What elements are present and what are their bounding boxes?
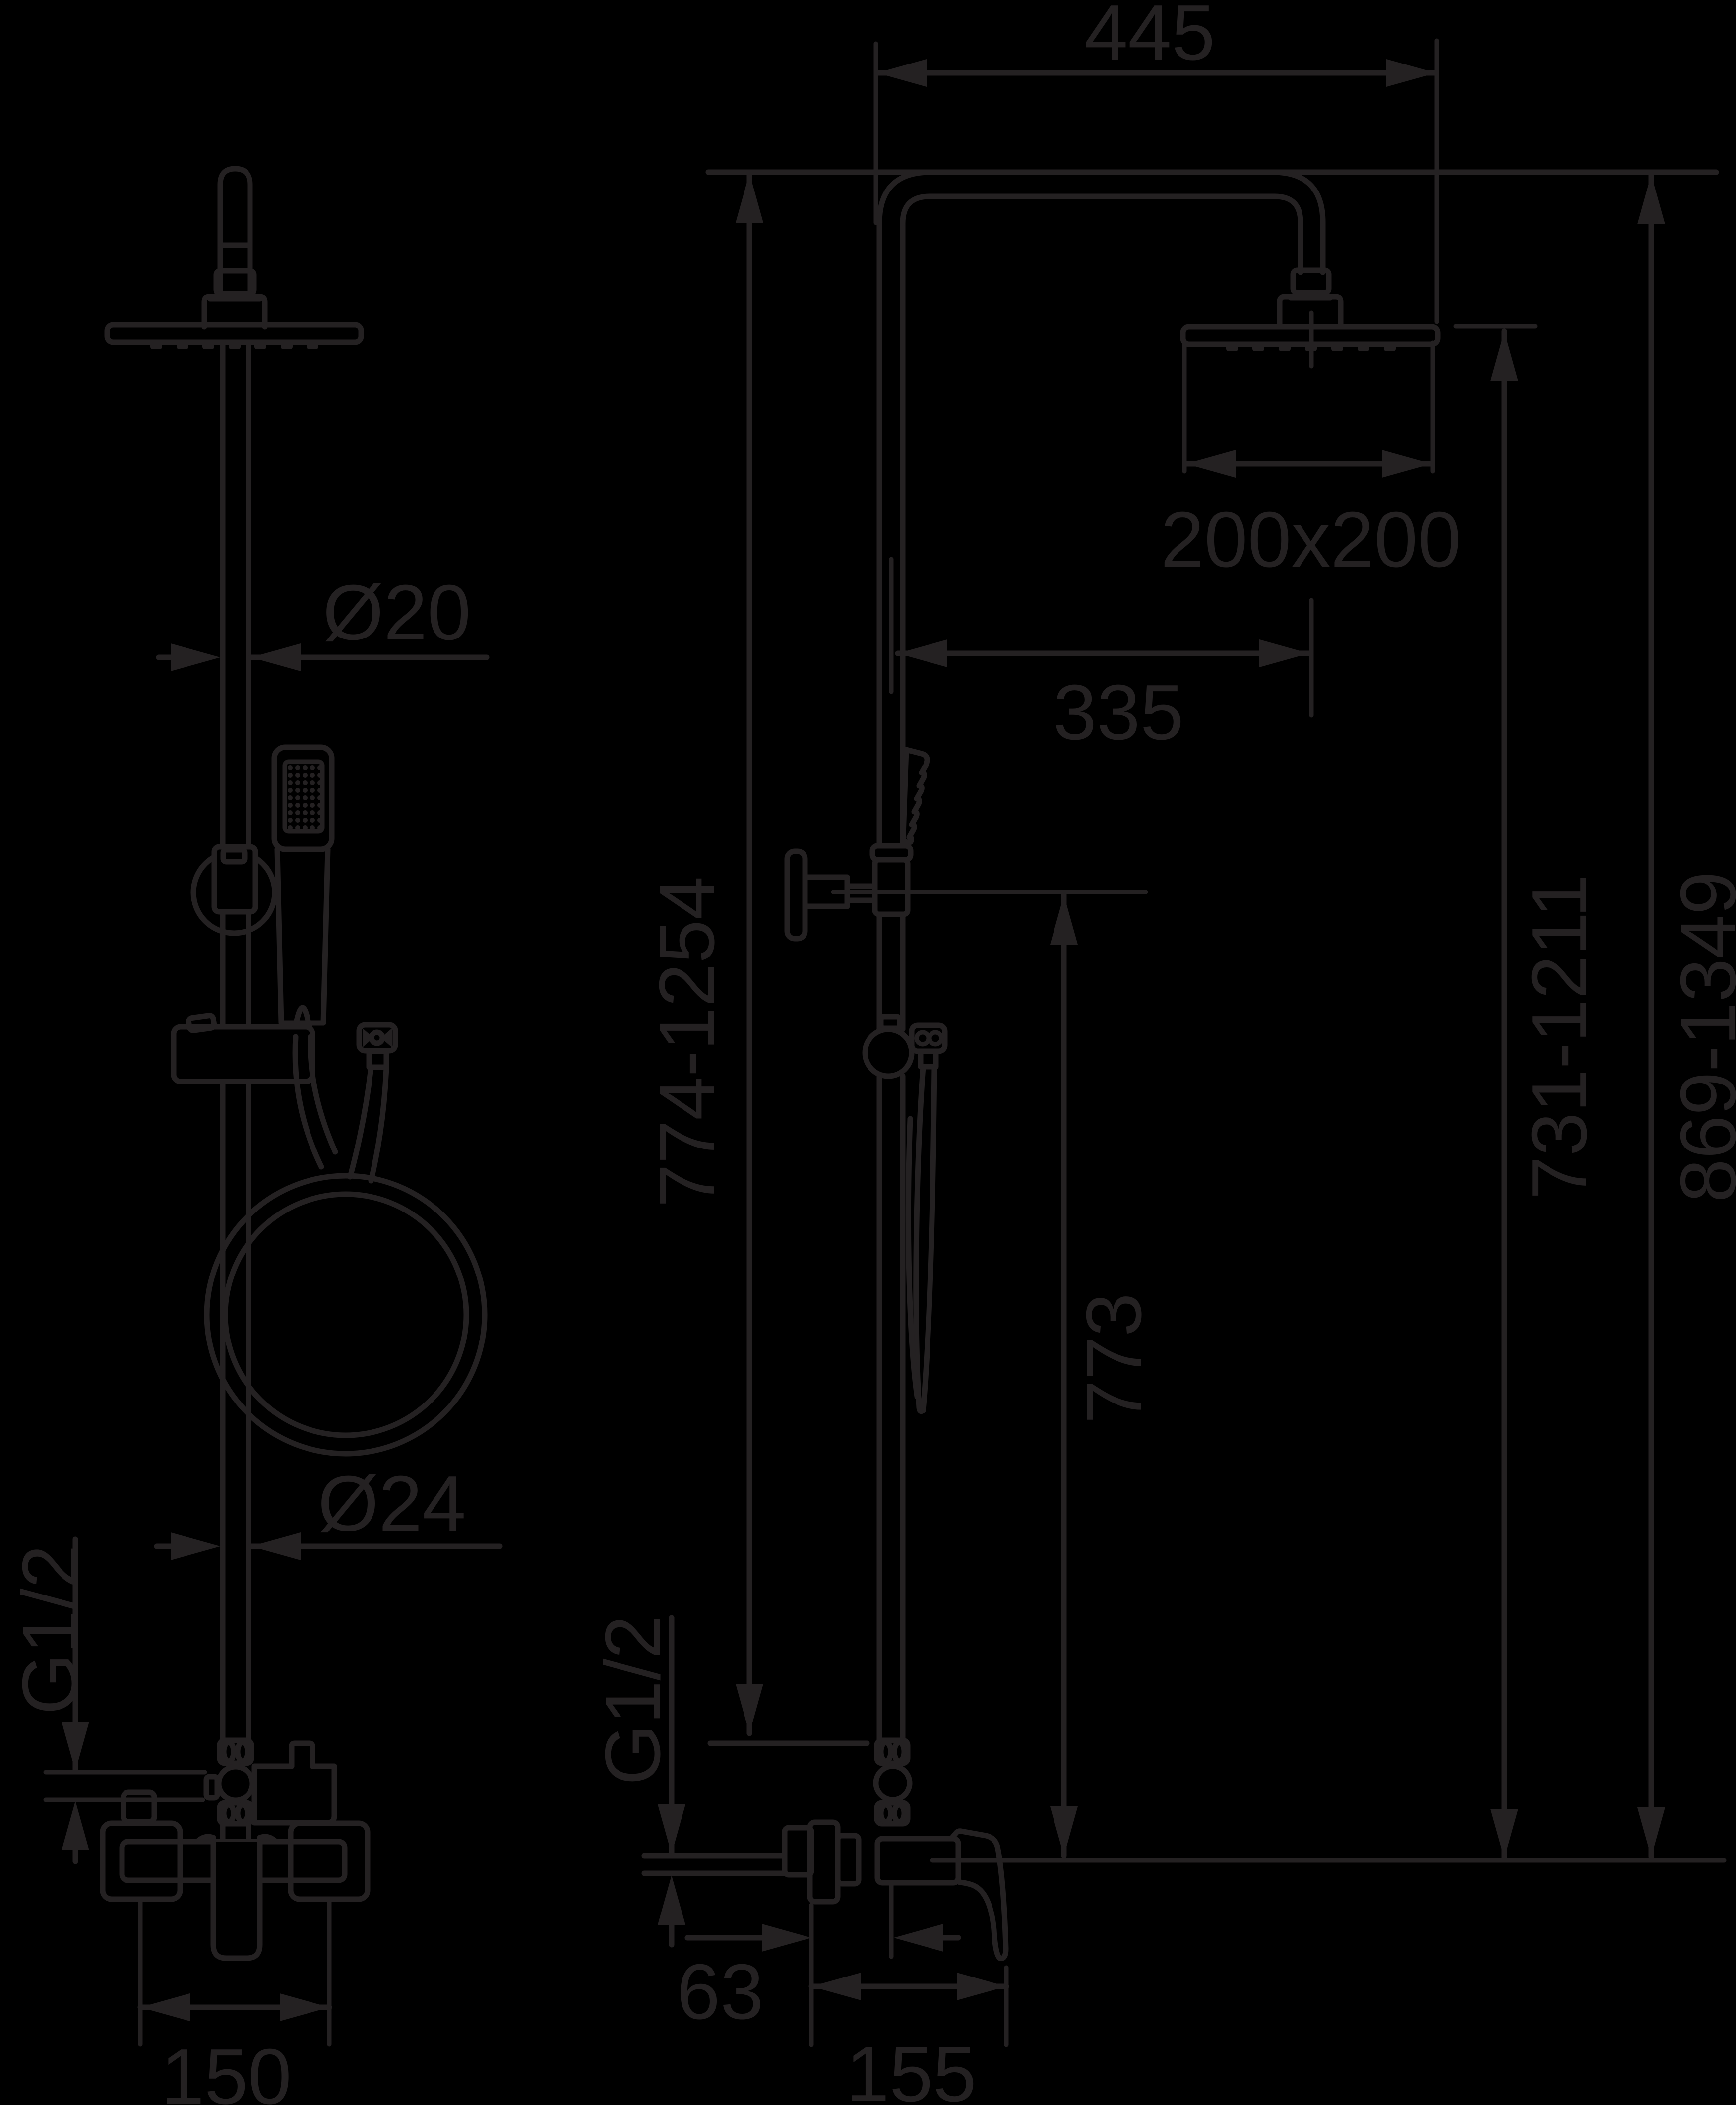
svg-text:445: 445: [1084, 0, 1215, 76]
svg-text:869-1349: 869-1349: [1665, 871, 1736, 1203]
svg-text:Ø20: Ø20: [323, 569, 471, 656]
svg-text:G1/2: G1/2: [589, 1615, 677, 1786]
svg-text:150: 150: [161, 2033, 292, 2105]
svg-text:155: 155: [846, 2031, 977, 2105]
svg-text:335: 335: [1053, 669, 1184, 756]
svg-text:200x200: 200x200: [1161, 496, 1461, 583]
svg-text:63: 63: [677, 1948, 764, 2036]
svg-text:773: 773: [1070, 1293, 1158, 1424]
svg-text:Ø24: Ø24: [318, 1460, 466, 1547]
svg-text:731-1211: 731-1211: [1516, 874, 1603, 1200]
svg-text:G1/2: G1/2: [6, 1545, 94, 1715]
svg-text:774-1254: 774-1254: [643, 876, 731, 1208]
